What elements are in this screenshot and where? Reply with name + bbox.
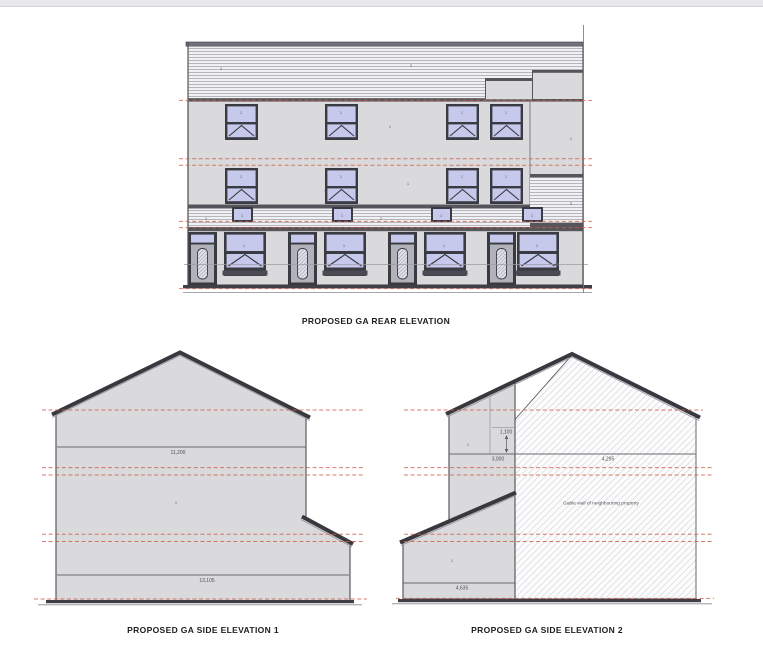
entrance-door <box>388 232 417 285</box>
entrance-door <box>188 232 217 285</box>
entrance-door <box>487 232 516 285</box>
side2-ground-line <box>398 599 701 602</box>
side-elevation-1-drawing: 11,200 13,105 <box>34 353 367 605</box>
side-elevation-1-title: PROPOSED GA SIDE ELEVATION 1 <box>83 625 323 635</box>
ground-window <box>323 232 368 276</box>
elevations-svg: 11,200 13,105 <box>0 0 763 667</box>
side2-dim-small: 1,100 <box>500 430 513 436</box>
ground-window <box>223 232 268 276</box>
side2-dim-left: 3,000 <box>492 457 505 463</box>
rear-elevation-title: PROPOSED GA REAR ELEVATION <box>256 316 496 326</box>
side2-front-wall <box>403 382 515 600</box>
ground-window <box>516 232 561 276</box>
side1-dim-lower: 13,105 <box>199 578 215 584</box>
entrance-door <box>288 232 317 285</box>
neighbour-gable-wall-hatched <box>515 355 696 599</box>
side1-dim-upper: 11,200 <box>171 450 186 456</box>
drawing-sheet: 11,200 13,105 <box>0 0 763 667</box>
side2-dim-right: 4,295 <box>602 457 615 463</box>
neighbour-gable-note: Gable wall of neighbouring property <box>563 501 639 507</box>
ground-window <box>423 232 468 276</box>
side-elevation-2-title: PROPOSED GA SIDE ELEVATION 2 <box>427 625 667 635</box>
side-elevation-2-drawing: 1,100 3,000 4,295 4,635 Gable wall of ne… <box>392 354 714 604</box>
rear-elevation-drawing <box>179 25 592 293</box>
side1-ground-line <box>46 600 354 603</box>
side2-dim-bottom: 4,635 <box>456 586 469 592</box>
